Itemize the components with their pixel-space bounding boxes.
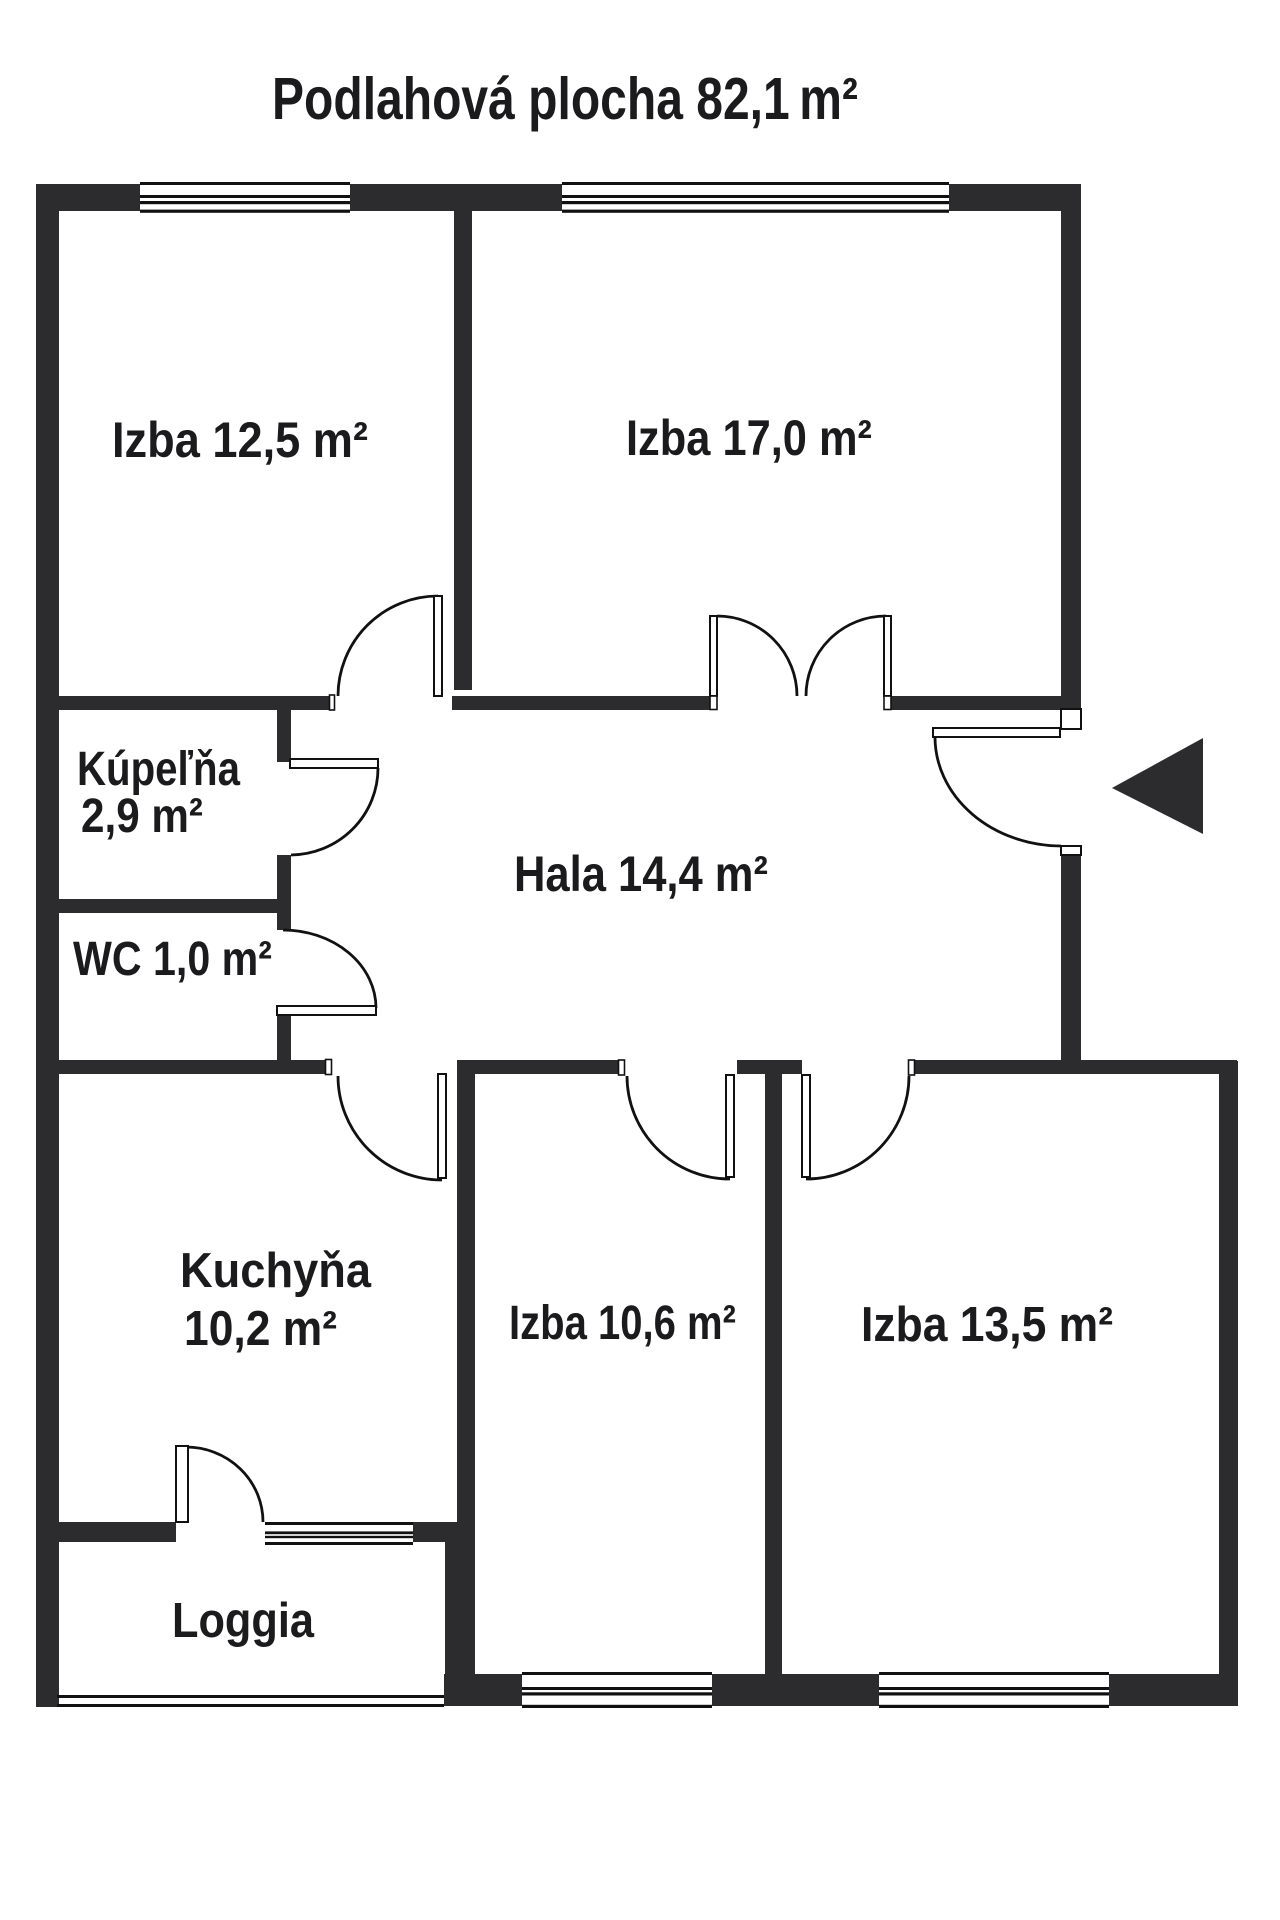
svg-text:2,9 m²: 2,9 m² [81, 790, 203, 843]
svg-text:Hala 14,4 m²: Hala 14,4 m² [514, 846, 768, 902]
svg-text:WC 1,0 m²: WC 1,0 m² [73, 933, 272, 986]
svg-text:Kúpeľňa: Kúpeľňa [77, 743, 240, 796]
svg-text:Izba 12,5 m²: Izba 12,5 m² [112, 412, 368, 468]
svg-text:Kuchyňa: Kuchyňa [180, 1244, 372, 1298]
svg-text:10,2 m²: 10,2 m² [184, 1302, 337, 1356]
svg-text:Izba 10,6 m²: Izba 10,6 m² [509, 1297, 736, 1350]
svg-text:Podlahová plocha 82,1 m²: Podlahová plocha 82,1 m² [272, 66, 858, 132]
svg-text:Izba 13,5 m²: Izba 13,5 m² [861, 1298, 1113, 1352]
svg-text:Loggia: Loggia [172, 1594, 315, 1648]
svg-text:Izba 17,0 m²: Izba 17,0 m² [626, 410, 872, 466]
